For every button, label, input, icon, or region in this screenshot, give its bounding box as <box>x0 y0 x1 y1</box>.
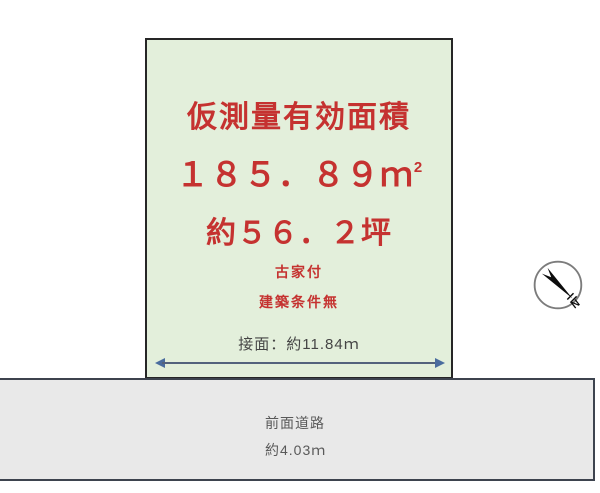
frontage-dimension-arrow <box>155 358 445 368</box>
north-label: N <box>570 298 583 311</box>
road-name: 前面道路 <box>265 410 326 437</box>
road-label: 前面道路 約4.03ｍ <box>265 410 326 464</box>
survey-area-title: 仮測量有効面積 <box>147 92 451 136</box>
area-unit: ｍ <box>380 156 414 193</box>
area-unit-superscript: 2 <box>414 159 422 176</box>
road-width: 約4.03ｍ <box>265 437 326 464</box>
compass-needle <box>542 268 573 299</box>
area-tsubo: 約５６．２坪 <box>147 208 451 252</box>
north-arrow-icon: N <box>531 257 587 313</box>
no-building-conditions-note: 建築条件無 <box>147 292 451 312</box>
frontage-label: 接面：約11.84ｍ <box>147 333 451 354</box>
land-plot: 仮測量有効面積 １８５．８９ｍ2 約５６．２坪 古家付 建築条件無 接面：約11… <box>145 38 453 379</box>
property-plot-diagram: 仮測量有効面積 １８５．８９ｍ2 約５６．２坪 古家付 建築条件無 接面：約11… <box>0 0 600 493</box>
arrow-right-head-icon <box>435 358 445 368</box>
area-square-meters: １８５．８９ｍ2 <box>147 148 451 196</box>
front-road-band: 前面道路 約4.03ｍ <box>0 378 595 481</box>
dimension-line <box>162 362 438 364</box>
area-value: １８５．８９ <box>176 156 380 193</box>
old-house-note: 古家付 <box>147 262 451 282</box>
